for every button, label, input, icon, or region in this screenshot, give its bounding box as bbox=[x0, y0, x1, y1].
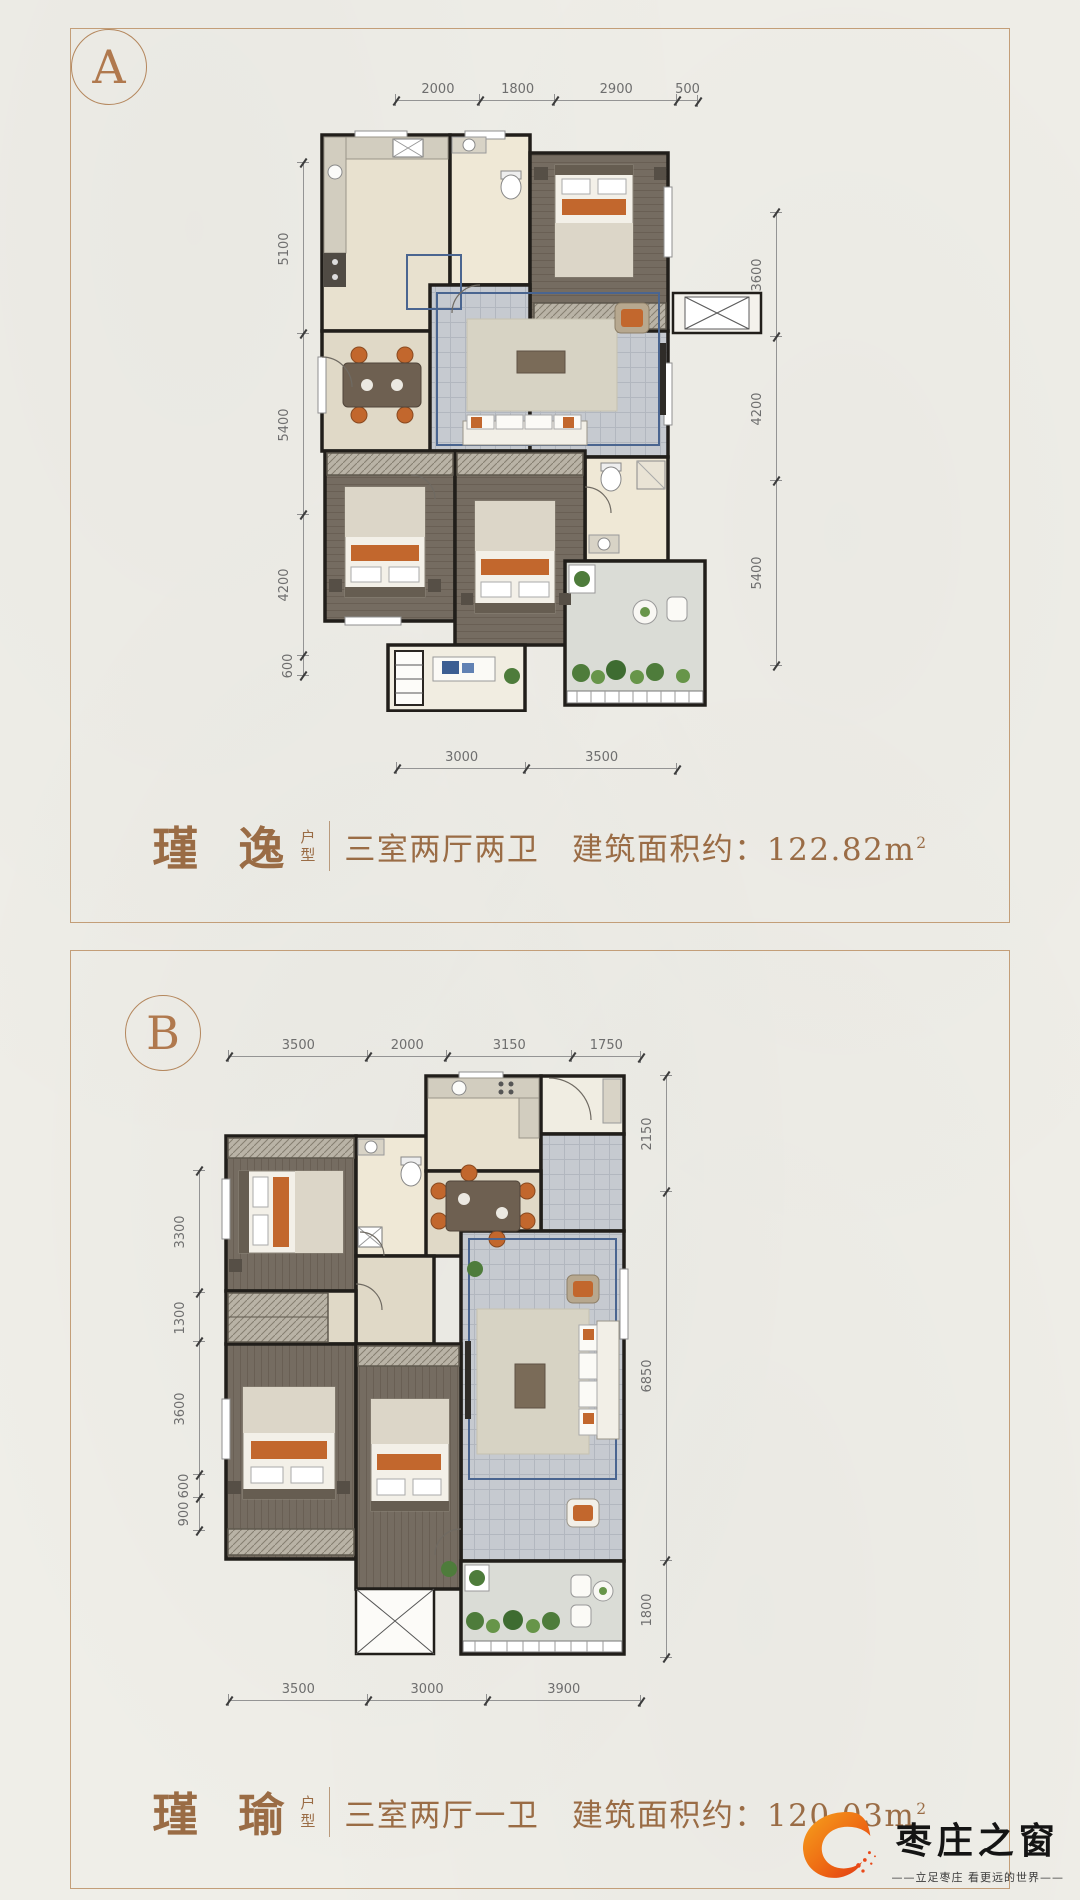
dim-label: 3300 bbox=[173, 1216, 188, 1249]
logo-swoosh-icon bbox=[794, 1806, 886, 1890]
logo-text: 枣庄之窗 ——立足枣庄 看更远的世界—— bbox=[892, 1812, 1065, 1885]
dim-label: 3500 bbox=[282, 1038, 315, 1053]
unit-a-badge: A A bbox=[71, 29, 147, 105]
dim-label: 3000 bbox=[411, 1682, 444, 1697]
dim-label: 1300 bbox=[173, 1301, 188, 1334]
stair-lattice-icon bbox=[356, 1589, 434, 1654]
elevator-shaft-icon bbox=[673, 293, 761, 333]
dim-rail-left-b: 3300 1300 3600 600 900 bbox=[181, 1171, 199, 1531]
unit-b-name: 瑾 瑜 bbox=[152, 1779, 296, 1845]
dim-label: 3500 bbox=[585, 750, 618, 765]
dim-rail-right-b: 2150 6850 1800 bbox=[648, 1076, 666, 1658]
wardrobe-corridor-b bbox=[228, 1293, 328, 1342]
unit-a-desc-text: 三室两厅两卫 建筑面积约：122.82m bbox=[344, 832, 915, 868]
logo-brand-name: 枣庄之窗 bbox=[896, 1812, 1060, 1864]
dim-label: 3150 bbox=[493, 1038, 526, 1053]
bedroom-area-b-tl bbox=[228, 1138, 354, 1272]
bedroom-area-b-bl bbox=[228, 1387, 354, 1555]
dim-label: 2150 bbox=[640, 1117, 655, 1150]
dim-label: 2000 bbox=[421, 82, 454, 97]
dim-rail-left-a: 5100 5400 4200 600 bbox=[285, 163, 303, 676]
caption-divider bbox=[329, 1787, 330, 1837]
floorplan-poster: A A 2000 1800 2900 500 5100 5400 4200 60… bbox=[0, 0, 1080, 1900]
unit-type-label: 户 型 bbox=[300, 828, 315, 864]
unit-a-description: 三室两厅两卫 建筑面积约：122.82m2 bbox=[344, 824, 927, 869]
dim-label: 600 bbox=[177, 1474, 192, 1499]
unit-b-panel: B 3500 2000 3150 1750 3300 1300 3600 600… bbox=[70, 950, 1010, 1889]
square-meter-sup: 2 bbox=[916, 834, 927, 852]
dim-label: 2900 bbox=[600, 82, 633, 97]
unit-type-char: 型 bbox=[300, 1812, 315, 1830]
unit-a-name: 瑾 逸 bbox=[152, 813, 296, 879]
floor-plan-b bbox=[219, 1069, 629, 1659]
dim-rail-top-b: 3500 2000 3150 1750 bbox=[229, 1041, 641, 1057]
unit-a-panel: A A 2000 1800 2900 500 5100 5400 4200 60… bbox=[70, 28, 1010, 923]
dim-label: 5400 bbox=[277, 408, 292, 441]
dim-label: 600 bbox=[281, 654, 296, 679]
floor-plan-a bbox=[315, 127, 770, 712]
dim-label: 2000 bbox=[391, 1038, 424, 1053]
unit-type-label: 户 型 bbox=[300, 1794, 315, 1830]
dim-label: 900 bbox=[177, 1502, 192, 1527]
dim-label: 3000 bbox=[445, 750, 478, 765]
caption-divider bbox=[329, 821, 330, 871]
site-logo: 枣庄之窗 ——立足枣庄 看更远的世界—— bbox=[794, 1806, 1065, 1890]
unit-b-letter: B bbox=[146, 1006, 180, 1060]
unit-a-caption: 瑾 逸 户 型 三室两厅两卫 建筑面积约：122.82m2 bbox=[71, 813, 1009, 879]
dim-label: 1750 bbox=[590, 1038, 623, 1053]
unit-b-badge: B bbox=[125, 995, 201, 1071]
dim-label: 6850 bbox=[640, 1360, 655, 1393]
logo-tagline: ——立足枣庄 看更远的世界—— bbox=[892, 1869, 1065, 1885]
dim-label: 3600 bbox=[173, 1392, 188, 1425]
dim-label: 1800 bbox=[640, 1593, 655, 1626]
dim-label: 4200 bbox=[277, 569, 292, 602]
unit-type-char: 户 bbox=[300, 828, 315, 846]
dim-label: 1800 bbox=[501, 82, 534, 97]
dim-label: 3900 bbox=[547, 1682, 580, 1697]
dim-rail-top-a: 2000 1800 2900 500 bbox=[396, 85, 698, 101]
unit-type-char: 型 bbox=[300, 846, 315, 864]
unit-type-char: 户 bbox=[300, 1794, 315, 1812]
unit-a-letter: A bbox=[92, 40, 125, 94]
dim-rail-bottom-b: 3500 3000 3900 bbox=[229, 1685, 641, 1701]
dim-rail-bottom-a: 3000 3500 bbox=[397, 753, 677, 769]
dim-label: 3500 bbox=[282, 1682, 315, 1697]
dim-label: 5100 bbox=[277, 232, 292, 265]
